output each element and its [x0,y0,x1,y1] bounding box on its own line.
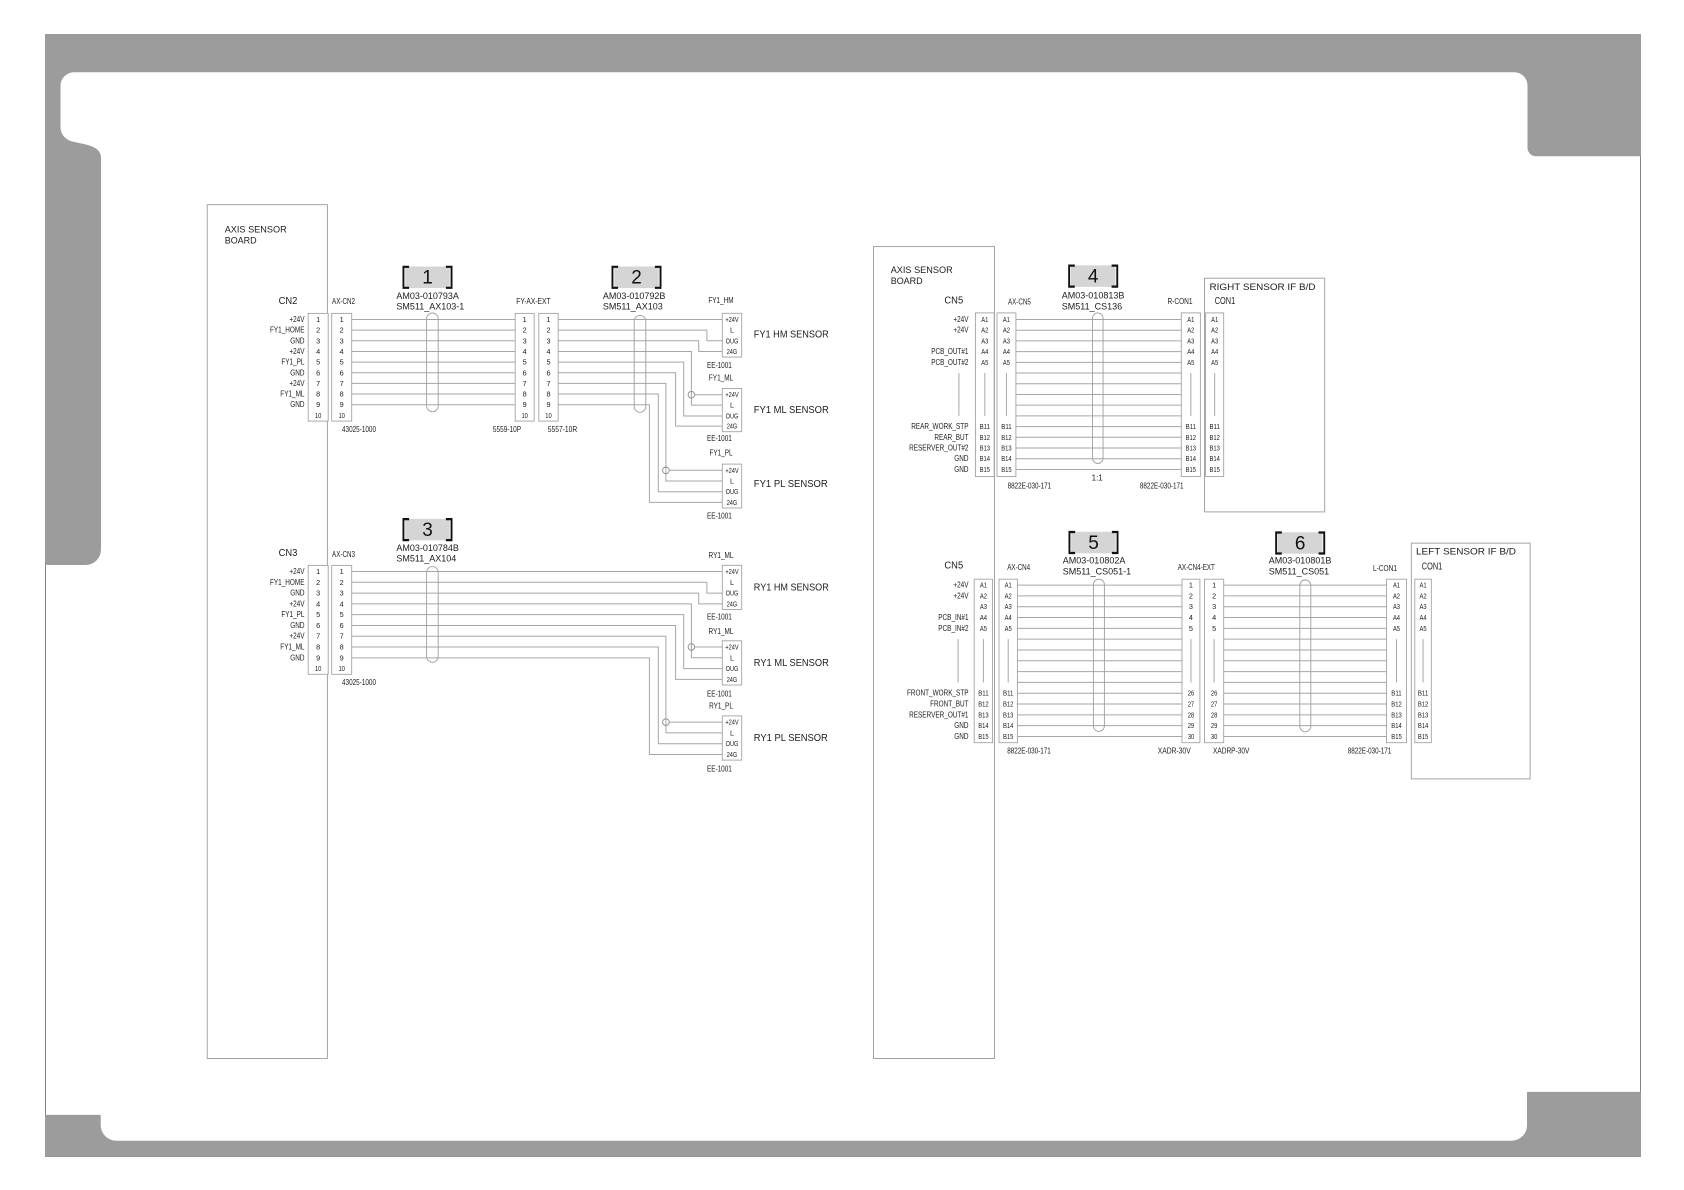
svg-text:B13: B13 [1186,444,1196,453]
svg-text:43025-1000: 43025-1000 [342,678,376,687]
svg-text:4: 4 [316,599,320,608]
svg-text:FY1 ML SENSOR: FY1 ML SENSOR [754,405,829,416]
svg-text:10: 10 [338,664,345,673]
svg-text:8: 8 [546,390,550,399]
svg-text:CN2: CN2 [279,296,298,307]
svg-text:GND: GND [290,400,304,409]
svg-text:24G: 24G [727,599,738,608]
svg-text:6: 6 [546,368,550,377]
svg-text:+24V: +24V [289,347,305,356]
svg-text:SM511_AX103: SM511_AX103 [603,301,663,311]
svg-text:24G: 24G [727,498,738,507]
svg-text:A1: A1 [1393,581,1400,590]
svg-text:B11: B11 [980,422,990,431]
svg-text:8: 8 [340,643,344,652]
svg-text:FY1_PL: FY1_PL [709,448,733,457]
svg-text:B11: B11 [1391,689,1401,698]
svg-text:7: 7 [523,379,527,388]
svg-text:5: 5 [1088,533,1099,554]
svg-text:27: 27 [1188,700,1195,709]
svg-text:B14: B14 [978,721,988,730]
svg-text:AM03-010813B: AM03-010813B [1062,291,1125,301]
svg-text:B14: B14 [1209,454,1219,463]
svg-text:B15: B15 [1001,465,1011,474]
svg-text:XADR-30V: XADR-30V [1158,747,1192,756]
svg-text:B13: B13 [1001,444,1011,453]
svg-text:2: 2 [340,326,344,335]
svg-text:3: 3 [523,336,527,345]
svg-text:4: 4 [1189,613,1193,622]
svg-text:SM511_AX104: SM511_AX104 [396,554,456,564]
svg-text:A3: A3 [981,336,988,345]
svg-text:4: 4 [316,347,320,356]
svg-text:A2: A2 [1393,591,1400,600]
svg-text:2: 2 [1189,591,1193,600]
svg-text:8822E-030-171: 8822E-030-171 [1008,481,1052,490]
svg-text:B15: B15 [1186,465,1196,474]
svg-text:B12: B12 [1418,700,1428,709]
svg-text:B15: B15 [1003,732,1013,741]
svg-text:1:1: 1:1 [1092,473,1104,482]
svg-text:EE-1001: EE-1001 [707,765,732,774]
svg-text:B14: B14 [1001,454,1011,463]
svg-text:AXIS SENSOR: AXIS SENSOR [225,225,287,236]
svg-text:3: 3 [546,336,550,345]
svg-text:2: 2 [1212,591,1216,600]
svg-text:EE-1001: EE-1001 [707,512,732,521]
svg-text:RY1 HM SENSOR: RY1 HM SENSOR [754,582,829,593]
svg-text:+24V: +24V [725,643,738,652]
svg-text:6: 6 [523,368,527,377]
svg-text:A5: A5 [980,624,987,633]
svg-text:+24V: +24V [289,632,305,641]
svg-text:GND: GND [954,732,968,741]
svg-text:RY1_PL: RY1_PL [709,702,733,711]
svg-text:8822E-030-171: 8822E-030-171 [1140,481,1184,490]
svg-text:AX-CN4: AX-CN4 [1007,563,1030,572]
svg-text:8: 8 [340,390,344,399]
svg-text:B12: B12 [1001,433,1011,442]
svg-text:OUG: OUG [726,739,739,748]
svg-text:XADRP-30V: XADRP-30V [1213,747,1250,756]
svg-text:RY1_ML: RY1_ML [709,627,734,636]
svg-text:+24V: +24V [725,567,738,576]
svg-text:5: 5 [316,358,320,367]
svg-text:L: L [730,477,734,486]
svg-text:1: 1 [316,567,320,576]
svg-text:L: L [730,401,734,410]
svg-text:CN5: CN5 [944,296,963,307]
svg-text:L: L [730,326,734,335]
svg-text:B14: B14 [1418,721,1428,730]
svg-text:7: 7 [316,632,320,641]
svg-text:6: 6 [316,368,320,377]
svg-text:RY1 ML SENSOR: RY1 ML SENSOR [754,658,829,669]
svg-text:B15: B15 [1391,732,1401,741]
svg-text:OUG: OUG [726,589,739,598]
svg-text:EE-1001: EE-1001 [707,361,732,370]
svg-text:5: 5 [523,358,527,367]
svg-text:GND: GND [290,589,304,598]
svg-text:1: 1 [523,315,527,324]
svg-text:10: 10 [315,664,322,673]
svg-text:L: L [730,653,734,662]
svg-text:9: 9 [340,400,344,409]
svg-text:+24V: +24V [725,718,738,727]
svg-text:B11: B11 [978,689,988,698]
svg-text:A4: A4 [980,613,987,622]
svg-text:A1: A1 [1420,581,1427,590]
svg-text:A3: A3 [1187,336,1194,345]
svg-text:B13: B13 [1209,444,1219,453]
svg-text:A5: A5 [1005,624,1012,633]
svg-text:GND: GND [290,368,304,377]
svg-text:B11: B11 [1003,689,1013,698]
svg-text:SM511_CS051-1: SM511_CS051-1 [1063,566,1131,576]
svg-text:FY-AX-EXT: FY-AX-EXT [516,297,550,306]
svg-text:EE-1001: EE-1001 [707,434,732,443]
svg-text:GND: GND [290,621,304,630]
svg-text:B13: B13 [1418,710,1428,719]
svg-text:PCB_OUT#2: PCB_OUT#2 [931,358,969,367]
svg-text:10: 10 [315,411,322,420]
svg-text:A2: A2 [1420,591,1427,600]
svg-text:GND: GND [954,721,968,730]
svg-text:A2: A2 [1211,326,1218,335]
svg-text:A1: A1 [981,315,988,324]
svg-text:5: 5 [546,358,550,367]
svg-text:10: 10 [545,411,552,420]
svg-text:A2: A2 [1005,591,1012,600]
svg-text:OUG: OUG [726,664,739,673]
svg-text:OUG: OUG [726,412,739,421]
svg-text:4: 4 [546,347,550,356]
svg-text:+24V: +24V [953,591,969,600]
svg-text:2: 2 [316,326,320,335]
svg-text:+24V: +24V [953,315,969,324]
svg-text:5: 5 [340,610,344,619]
svg-text:1: 1 [316,315,320,324]
svg-text:28: 28 [1188,710,1195,719]
svg-text:8: 8 [523,390,527,399]
svg-text:EE-1001: EE-1001 [707,612,732,621]
svg-text:5559-10P: 5559-10P [493,425,521,434]
svg-text:AX-CN5: AX-CN5 [1008,298,1031,307]
svg-text:7: 7 [340,632,344,641]
svg-text:PCB_IN#1: PCB_IN#1 [938,613,969,622]
svg-text:A3: A3 [1420,602,1427,611]
svg-text:AX-CN4-EXT: AX-CN4-EXT [1178,563,1215,572]
svg-text:AM03-010792B: AM03-010792B [603,291,666,301]
svg-text:24G: 24G [727,675,738,684]
svg-text:1: 1 [1189,581,1193,590]
svg-text:GND: GND [954,465,968,474]
svg-text:8822E-030-171: 8822E-030-171 [1007,747,1051,756]
svg-text:A3: A3 [1003,336,1010,345]
svg-text:7: 7 [316,379,320,388]
svg-text:3: 3 [340,336,344,345]
svg-text:FRONT_WORK_STP: FRONT_WORK_STP [907,689,969,698]
svg-text:10: 10 [338,411,345,420]
svg-text:A5: A5 [1393,624,1400,633]
svg-text:4: 4 [1088,266,1099,287]
svg-text:B15: B15 [980,465,990,474]
svg-text:1: 1 [340,567,344,576]
svg-text:FY1_ML: FY1_ML [709,374,734,383]
svg-text:L: L [730,578,734,587]
svg-text:3: 3 [1212,602,1216,611]
svg-text:OUG: OUG [726,487,739,496]
svg-text:B13: B13 [1003,710,1013,719]
svg-text:24G: 24G [727,422,738,431]
svg-text:B11: B11 [1418,689,1428,698]
svg-text:RESERVER_OUT#1: RESERVER_OUT#1 [909,710,969,719]
svg-text:FRONT_BUT: FRONT_BUT [930,700,968,709]
svg-text:43025-1000: 43025-1000 [342,425,376,434]
svg-text:B11: B11 [1186,422,1196,431]
svg-text:2: 2 [546,326,550,335]
svg-text:RY1_ML: RY1_ML [709,551,734,560]
svg-text:AX-CN3: AX-CN3 [332,550,355,559]
svg-text:A5: A5 [1211,358,1218,367]
svg-text:2: 2 [523,326,527,335]
svg-text:8: 8 [316,643,320,652]
svg-text:B14: B14 [980,454,990,463]
svg-text:+24V: +24V [725,466,738,475]
svg-text:30: 30 [1211,732,1218,741]
svg-text:SM511_AX103-1: SM511_AX103-1 [396,301,464,311]
svg-text:AM03-010784B: AM03-010784B [396,543,459,553]
svg-text:B12: B12 [1391,700,1401,709]
svg-text:AXIS SENSOR: AXIS SENSOR [891,265,953,276]
svg-text:A3: A3 [1393,602,1400,611]
svg-text:A3: A3 [1005,602,1012,611]
svg-text:OUG: OUG [726,336,739,345]
svg-text:26: 26 [1211,689,1218,698]
svg-text:29: 29 [1188,721,1195,730]
svg-text:PCB_IN#2: PCB_IN#2 [938,624,969,633]
svg-text:A4: A4 [1003,347,1010,356]
svg-text:1: 1 [1212,581,1216,590]
svg-text:GND: GND [954,454,968,463]
svg-text:A1: A1 [1005,581,1012,590]
svg-text:A1: A1 [980,581,987,590]
svg-text:5557-10R: 5557-10R [548,425,578,434]
svg-text:A3: A3 [1211,336,1218,345]
svg-text:EE-1001: EE-1001 [707,690,732,699]
svg-text:CON1: CON1 [1215,296,1236,307]
svg-text:FY1_ML: FY1_ML [280,390,305,399]
svg-text:2: 2 [340,578,344,587]
svg-text:8822E-030-171: 8822E-030-171 [1348,747,1392,756]
svg-text:29: 29 [1211,721,1218,730]
svg-text:+24V: +24V [953,581,969,590]
svg-text:+24V: +24V [953,326,969,335]
svg-text:CON1: CON1 [1422,562,1443,573]
svg-text:FY1_HM: FY1_HM [708,296,733,305]
svg-text:+24V: +24V [725,315,738,324]
svg-text:A4: A4 [981,347,988,356]
svg-text:B15: B15 [1418,732,1428,741]
svg-text:6: 6 [340,621,344,630]
svg-text:A4: A4 [1005,613,1012,622]
svg-text:A2: A2 [981,326,988,335]
svg-text:L-CON1: L-CON1 [1373,564,1398,573]
svg-text:5: 5 [1189,624,1193,633]
svg-text:B12: B12 [1209,433,1219,442]
svg-text:1: 1 [422,268,433,289]
svg-text:A5: A5 [981,358,988,367]
svg-text:FY1 PL SENSOR: FY1 PL SENSOR [754,479,828,490]
svg-text:REAR_WORK_STP: REAR_WORK_STP [911,422,968,431]
svg-text:SM511_CS136: SM511_CS136 [1062,301,1122,311]
svg-text:8: 8 [316,390,320,399]
svg-text:3: 3 [316,336,320,345]
svg-text:28: 28 [1211,710,1218,719]
svg-text:24G: 24G [727,750,738,759]
svg-text:REAR_BUT: REAR_BUT [934,433,968,442]
svg-text:FY1_PL: FY1_PL [281,358,305,367]
svg-text:24G: 24G [727,347,738,356]
svg-text:B11: B11 [1209,422,1219,431]
svg-text:+24V: +24V [289,315,305,324]
svg-text:B14: B14 [1003,721,1013,730]
svg-text:A5: A5 [1003,358,1010,367]
svg-text:4: 4 [340,599,344,608]
svg-text:AX-CN2: AX-CN2 [332,297,355,306]
svg-text:4: 4 [1212,613,1216,622]
svg-text:+24V: +24V [289,599,305,608]
svg-text:SM511_CS051: SM511_CS051 [1269,566,1329,576]
svg-text:3: 3 [316,589,320,598]
svg-text:9: 9 [523,400,527,409]
svg-text:A4: A4 [1393,613,1400,622]
svg-text:AM03-010802A: AM03-010802A [1063,555,1126,565]
svg-text:PCB_OUT#1: PCB_OUT#1 [931,347,969,356]
svg-text:BOARD: BOARD [225,235,257,246]
svg-text:L: L [730,728,734,737]
svg-text:B14: B14 [1391,721,1401,730]
svg-text:RY1 PL SENSOR: RY1 PL SENSOR [754,733,828,744]
svg-text:R-CON1: R-CON1 [1167,297,1193,306]
svg-text:BOARD: BOARD [891,276,923,287]
svg-text:A5: A5 [1187,358,1194,367]
svg-text:A4: A4 [1420,613,1427,622]
svg-text:A1: A1 [1187,315,1194,324]
svg-text:FY1_HOME: FY1_HOME [270,578,305,587]
svg-text:B13: B13 [980,444,990,453]
svg-text:B14: B14 [1186,454,1196,463]
svg-text:A4: A4 [1211,347,1218,356]
svg-text:A4: A4 [1187,347,1194,356]
svg-text:4: 4 [340,347,344,356]
svg-text:FY1_HOME: FY1_HOME [270,326,305,335]
svg-text:A1: A1 [1003,315,1010,324]
svg-text:FY1_PL: FY1_PL [281,610,305,619]
svg-text:A2: A2 [980,591,987,600]
svg-text:2: 2 [631,268,642,289]
svg-text:A1: A1 [1211,315,1218,324]
svg-text:GND: GND [290,336,304,345]
svg-text:26: 26 [1188,689,1195,698]
svg-text:B13: B13 [1391,710,1401,719]
svg-text:4: 4 [523,347,527,356]
svg-text:A3: A3 [980,602,987,611]
svg-text:+24V: +24V [289,379,305,388]
svg-text:3: 3 [340,589,344,598]
svg-text:5: 5 [1212,624,1216,633]
svg-text:B15: B15 [1209,465,1219,474]
svg-text:9: 9 [546,400,550,409]
svg-text:B15: B15 [978,732,988,741]
svg-text:30: 30 [1188,732,1195,741]
svg-text:6: 6 [316,621,320,630]
svg-text:AM03-010801B: AM03-010801B [1269,555,1332,565]
svg-text:A2: A2 [1187,326,1194,335]
svg-text:CN3: CN3 [279,548,298,559]
svg-text:1: 1 [340,315,344,324]
svg-text:3: 3 [422,520,433,541]
svg-text:5: 5 [316,610,320,619]
svg-text:B12: B12 [980,433,990,442]
svg-text:6: 6 [340,368,344,377]
svg-text:CN5: CN5 [944,561,963,572]
svg-text:RIGHT SENSOR IF B/D: RIGHT SENSOR IF B/D [1210,281,1316,292]
svg-text:B12: B12 [1186,433,1196,442]
svg-text:2: 2 [316,578,320,587]
svg-text:10: 10 [521,411,528,420]
svg-text:B11: B11 [1001,422,1011,431]
svg-text:5: 5 [340,358,344,367]
svg-text:B12: B12 [1003,700,1013,709]
svg-text:AM03-010793A: AM03-010793A [396,291,459,301]
svg-text:RESERVER_OUT#2: RESERVER_OUT#2 [909,444,969,453]
svg-text:LEFT SENSOR IF B/D: LEFT SENSOR IF B/D [1416,545,1516,556]
svg-text:27: 27 [1211,700,1218,709]
svg-text:FY1 HM SENSOR: FY1 HM SENSOR [754,329,829,340]
svg-text:1: 1 [546,315,550,324]
svg-text:7: 7 [546,379,550,388]
svg-text:+24V: +24V [289,567,305,576]
svg-text:A5: A5 [1420,624,1427,633]
svg-text:B13: B13 [978,710,988,719]
svg-text:+24V: +24V [725,390,738,399]
svg-text:6: 6 [1295,533,1306,554]
svg-text:B12: B12 [978,700,988,709]
svg-text:GND: GND [290,653,304,662]
svg-text:3: 3 [1189,602,1193,611]
svg-text:A2: A2 [1003,326,1010,335]
svg-text:9: 9 [316,653,320,662]
svg-text:9: 9 [316,400,320,409]
svg-text:FY1_ML: FY1_ML [280,643,305,652]
svg-text:7: 7 [340,379,344,388]
svg-text:9: 9 [340,653,344,662]
